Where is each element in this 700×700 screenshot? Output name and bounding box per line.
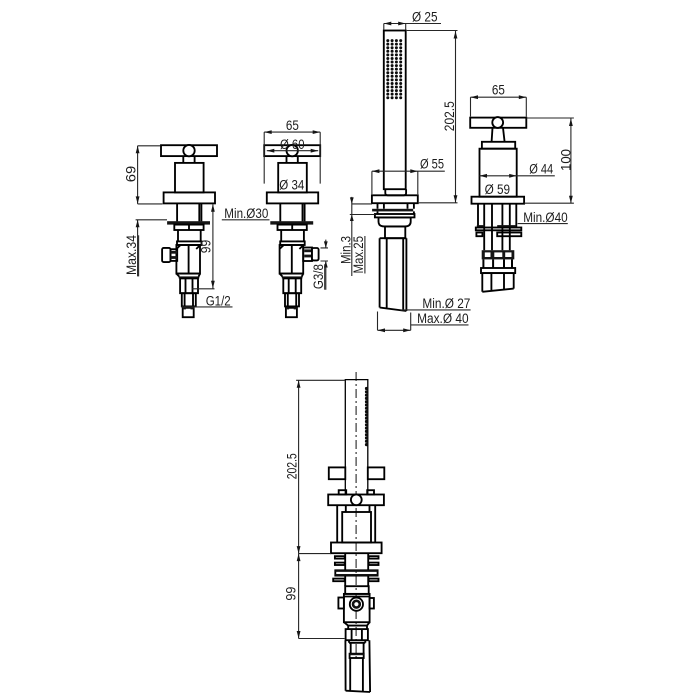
svg-text:Ø 60: Ø 60 [280, 137, 305, 152]
svg-text:Min.Ø30: Min.Ø30 [224, 206, 268, 221]
svg-text:G3/8: G3/8 [311, 264, 326, 289]
svg-text:Max.Ø 40: Max.Ø 40 [417, 311, 469, 326]
svg-text:Ø 34: Ø 34 [279, 177, 304, 192]
svg-text:202.5: 202.5 [285, 453, 300, 479]
svg-text:Max.34: Max.34 [124, 235, 139, 275]
svg-text:99: 99 [283, 587, 298, 601]
svg-text:202.5: 202.5 [442, 101, 457, 131]
svg-text:G1/2: G1/2 [206, 294, 231, 309]
svg-text:Max.25: Max.25 [351, 236, 366, 273]
svg-text:Ø 59: Ø 59 [485, 182, 511, 197]
svg-text:Min.Ø40: Min.Ø40 [523, 210, 568, 225]
svg-text:Ø 55: Ø 55 [420, 157, 444, 172]
svg-text:Min.Ø 27: Min.Ø 27 [422, 296, 470, 311]
svg-text:Ø 25: Ø 25 [412, 9, 438, 24]
svg-text:Ø 44: Ø 44 [529, 162, 553, 177]
svg-text:100: 100 [558, 149, 573, 171]
svg-text:65: 65 [286, 118, 299, 133]
svg-text:99: 99 [199, 240, 214, 254]
svg-text:69: 69 [123, 166, 138, 183]
svg-text:65: 65 [492, 83, 505, 98]
